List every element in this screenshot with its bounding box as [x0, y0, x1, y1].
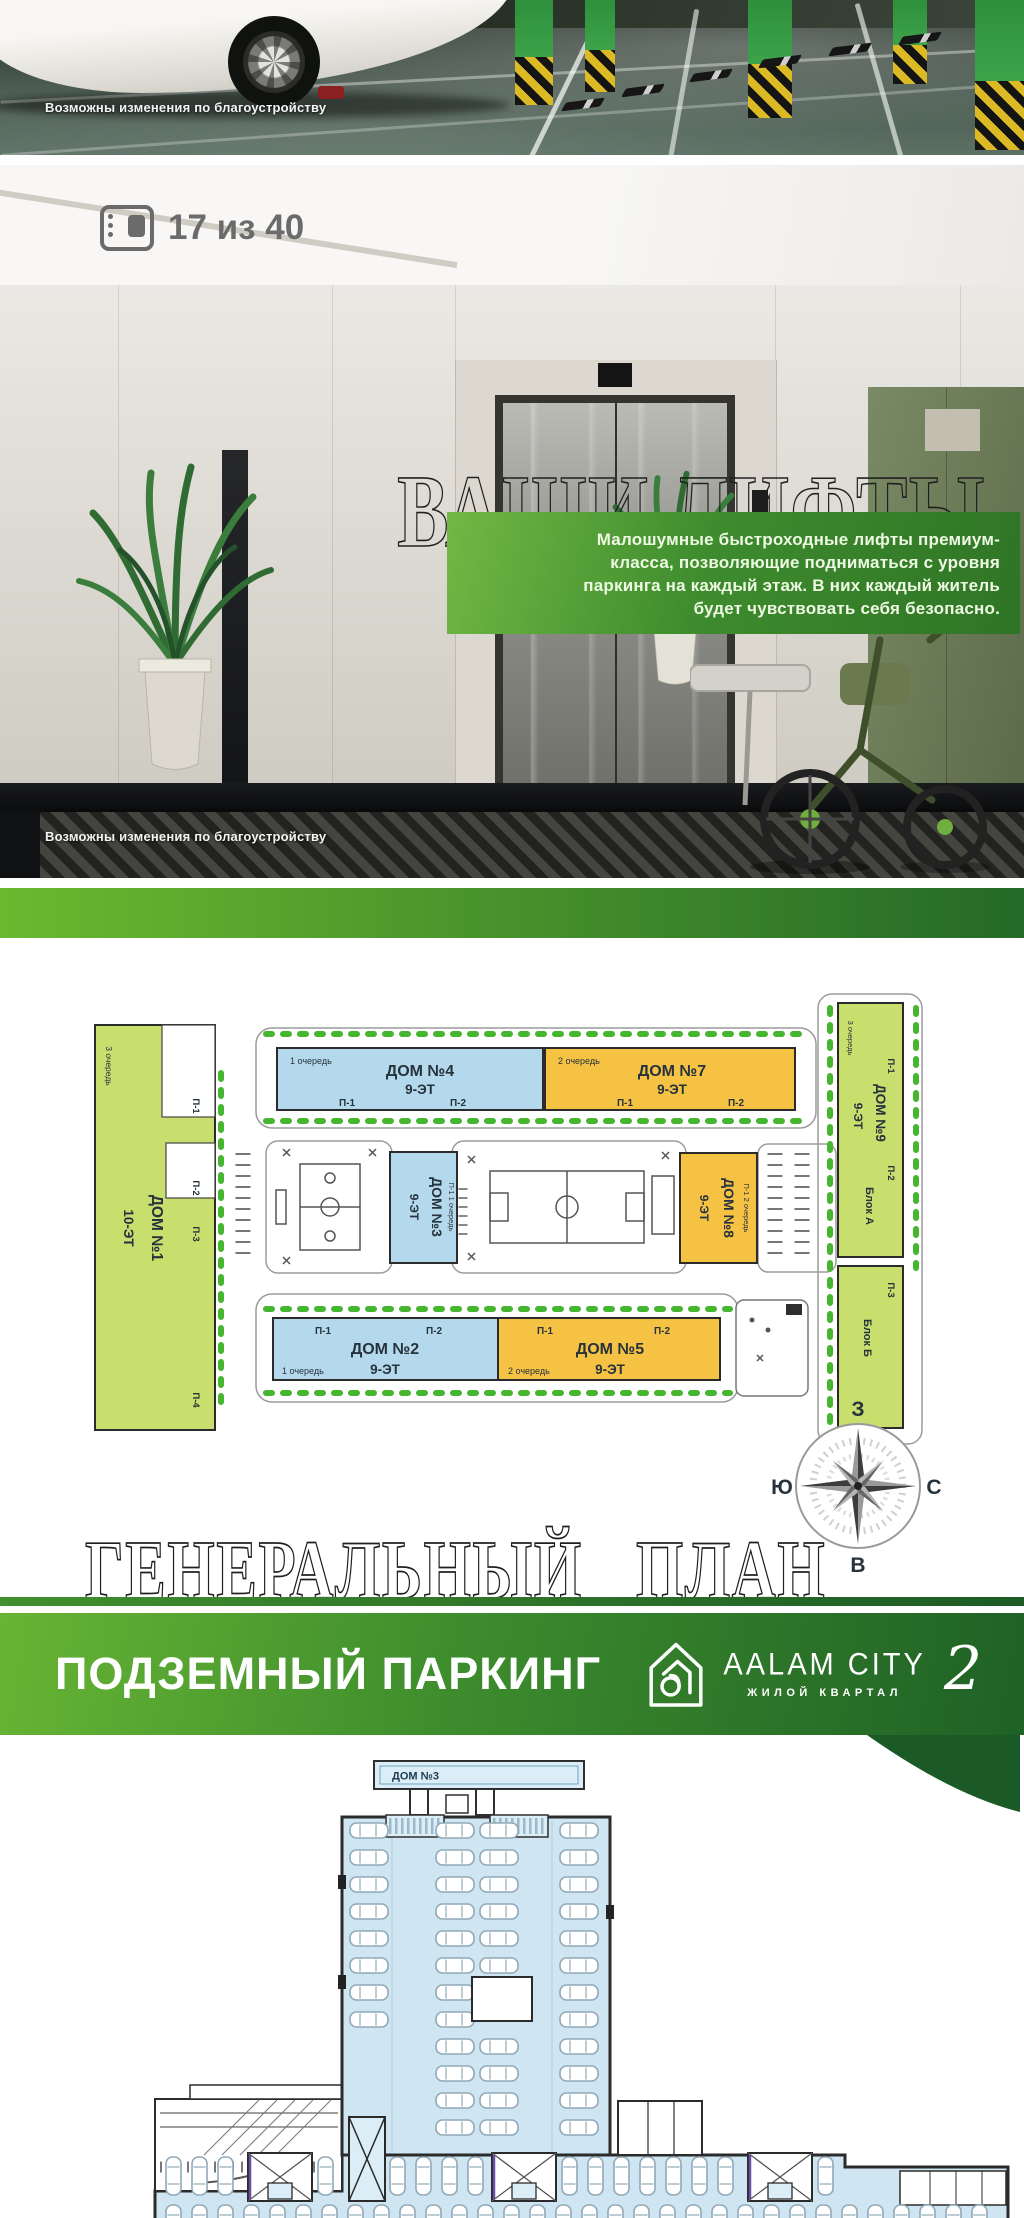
- brand-name: AALAM CITY: [723, 1648, 925, 1684]
- building-dom2: П-1 П-2 ДОМ №2 9-ЭТ 1 очередь: [273, 1318, 498, 1380]
- description-line: паркинга на каждый этаж. В них каждый жи…: [467, 574, 1000, 597]
- dom2-p1: П-1: [315, 1326, 332, 1337]
- dom2-queue: 1 очередь: [282, 1366, 324, 1376]
- building-dom9: 3 очередь П-1 ДОМ №9 9-ЭТ П-2 Блок А П-3…: [838, 1003, 903, 1428]
- dom9-block-b: Блок Б: [861, 1319, 873, 1357]
- dom9-queue: 3 очередь: [846, 1021, 855, 1056]
- dom1-p4: П-4: [190, 1392, 201, 1408]
- photo-disclaimer: Возможны изменения по благоустройству: [45, 100, 326, 115]
- plan-dom-label: ДОМ №3: [392, 1771, 439, 1783]
- description-line: Малошумные быстроходные лифты премиум-: [467, 528, 1000, 551]
- dom7-queue: 2 очередь: [558, 1056, 600, 1066]
- dom3-side: П-1 1 очередь: [447, 1183, 456, 1232]
- building-dom1: ДОМ №1 10-ЭТ 3 очередь П-1 П-2 П-3 П-4: [95, 1025, 215, 1430]
- dom1-p3: П-3: [190, 1226, 201, 1241]
- brand-number: 2: [944, 1634, 982, 1704]
- building-dom5: П-1 П-2 ДОМ №5 9-ЭТ 2 очередь: [498, 1318, 720, 1380]
- masterplan-section: ДОМ №1 10-ЭТ 3 очередь П-1 П-2 П-3 П-4 1…: [0, 938, 1024, 1598]
- dom8-name: ДОМ №8: [721, 1178, 737, 1238]
- dom1-p1: П-1: [190, 1098, 201, 1114]
- garage-column: [975, 0, 1024, 150]
- dom5-floors: 9-ЭТ: [595, 1362, 626, 1377]
- brand-tagline: ЖИЛОЙ КВАРТАЛ: [747, 1687, 902, 1699]
- courtyard-sportcourt: [463, 1152, 674, 1260]
- dom2-floors: 9-ЭТ: [370, 1362, 401, 1377]
- slides-icon: [100, 205, 154, 251]
- dom5-queue: 2 очередь: [508, 1366, 550, 1376]
- dom1-p2: П-2: [190, 1180, 201, 1195]
- brochure-page: Возможны изменения по благоустройству: [0, 0, 1024, 2218]
- parking-plan: ДОМ №3: [0, 1755, 1024, 2218]
- parking-floorplan-drawing: ДОМ №3: [0, 1755, 1024, 2218]
- kindergarten-block: [736, 1300, 808, 1396]
- upper-room: [472, 1977, 532, 2021]
- dom4-floors: 9-ЭТ: [405, 1082, 436, 1097]
- brand-logo: AALAM CITY ЖИЛОЙ КВАРТАЛ 2: [645, 1613, 982, 1735]
- building-dom4: 1 очередь ДОМ №4 9-ЭТ П-1 П-2: [277, 1048, 543, 1110]
- car-wheel: [243, 31, 305, 93]
- dom2-p2: П-2: [426, 1326, 443, 1337]
- compass-east: В: [850, 1554, 865, 1577]
- dom9-block-a: Блок А: [863, 1187, 875, 1225]
- description-line: будет чувствовать себя безопасно.: [467, 597, 1000, 620]
- building-dom8: ДОМ №8 9-ЭТ П-1 2 очередь: [680, 1153, 757, 1263]
- dom1-floors: 10-ЭТ: [121, 1209, 136, 1247]
- dom9-p3: П-3: [885, 1282, 896, 1297]
- dom9-p2: П-2: [885, 1165, 896, 1180]
- lifts-section: 17 из 40 ВАШИ ЛИФТЫ Малошумные быстроход…: [0, 165, 1024, 878]
- slide-counter-text: 17 из 40: [168, 208, 304, 248]
- description-box: Малошумные быстроходные лифты премиум- к…: [447, 512, 1020, 634]
- dom7-name: ДОМ №7: [638, 1063, 706, 1080]
- compass-south: Ю: [771, 1476, 793, 1499]
- dom9-floors: 9-ЭТ: [851, 1103, 865, 1130]
- building-dom7: 2 очередь ДОМ №7 9-ЭТ П-1 П-2: [545, 1048, 795, 1110]
- dom4-name: ДОМ №4: [386, 1063, 454, 1080]
- site-plan-map: ДОМ №1 10-ЭТ 3 очередь П-1 П-2 П-3 П-4 1…: [0, 938, 1024, 1598]
- compass-west: З: [851, 1398, 864, 1421]
- compass-north: С: [926, 1476, 941, 1499]
- dom9-name: ДОМ №9: [873, 1084, 888, 1142]
- parking-header: ПОДЗЕМНЫЙ ПАРКИНГ AALAM CITY ЖИЛОЙ КВАРТ…: [0, 1613, 1024, 1735]
- building-dom3: ДОМ №3 9-ЭТ П-1 1 очередь: [390, 1152, 457, 1263]
- dom1-name: ДОМ №1: [148, 1195, 165, 1262]
- thin-green-bar: [0, 1597, 1024, 1606]
- garage-column: [515, 0, 553, 105]
- dom5-p2: П-2: [654, 1326, 671, 1337]
- dom5-p1: П-1: [537, 1326, 554, 1337]
- dom7-floors: 9-ЭТ: [657, 1082, 688, 1097]
- dom1-queue: 3 очередь: [104, 1046, 114, 1086]
- dom8-side: П-1 2 очередь: [742, 1184, 751, 1233]
- dom3-floors: 9-ЭТ: [407, 1194, 421, 1221]
- dom9-p1: П-1: [885, 1058, 896, 1074]
- slide-counter: 17 из 40: [100, 205, 304, 251]
- dom4-p2: П-2: [450, 1098, 467, 1109]
- dom4-p1: П-1: [339, 1098, 356, 1109]
- dom8-floors: 9-ЭТ: [697, 1195, 711, 1222]
- dom5-name: ДОМ №5: [576, 1341, 644, 1358]
- house-icon: [645, 1636, 707, 1712]
- potted-plant: [75, 455, 275, 800]
- dom3-name: ДОМ №3: [429, 1177, 445, 1237]
- photo-disclaimer: Возможны изменения по благоустройству: [45, 829, 326, 844]
- ramp-cross: [349, 2117, 385, 2201]
- garage-photo: Возможны изменения по благоустройству: [0, 0, 1024, 155]
- description-line: класса, позволяющие подниматься с уровня: [467, 551, 1000, 574]
- dom4-queue: 1 очередь: [290, 1056, 332, 1066]
- dom7-p1: П-1: [617, 1098, 634, 1109]
- green-divider: [0, 888, 1024, 938]
- door-sign: [925, 409, 980, 451]
- courtyard-playground: [276, 1149, 376, 1264]
- dom2-name: ДОМ №2: [351, 1341, 419, 1358]
- section-title-parking: ПОДЗЕМНЫЙ ПАРКИНГ: [55, 1648, 601, 1700]
- elevator-display: [598, 363, 632, 387]
- dom7-p2: П-2: [728, 1098, 745, 1109]
- garage-column: [585, 0, 615, 92]
